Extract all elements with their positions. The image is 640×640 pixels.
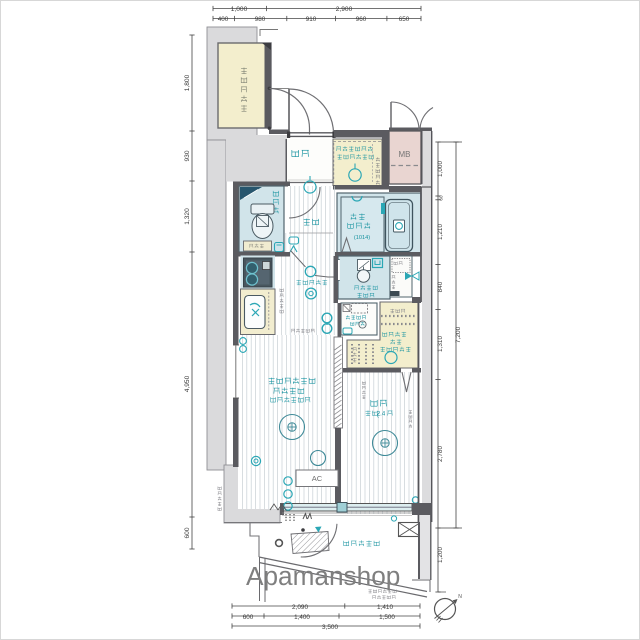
svg-text:600: 600 bbox=[243, 614, 254, 621]
svg-text:N: N bbox=[458, 594, 462, 600]
svg-text:1,410: 1,410 bbox=[377, 604, 393, 611]
svg-text:930: 930 bbox=[184, 150, 191, 161]
svg-text:400: 400 bbox=[218, 16, 229, 23]
svg-text:Apamanshop: Apamanshop bbox=[246, 561, 400, 591]
svg-text:1,000: 1,000 bbox=[437, 161, 444, 177]
svg-text:1,000: 1,000 bbox=[231, 6, 248, 13]
svg-text:980: 980 bbox=[255, 16, 266, 23]
svg-text:1,500: 1,500 bbox=[379, 614, 395, 621]
svg-text:840: 840 bbox=[437, 281, 444, 292]
svg-text:1,200: 1,200 bbox=[437, 547, 444, 563]
svg-text:7,200: 7,200 bbox=[455, 326, 462, 343]
svg-text:910: 910 bbox=[306, 16, 317, 23]
svg-text:1,400: 1,400 bbox=[294, 614, 310, 621]
svg-text:60: 60 bbox=[439, 195, 444, 201]
svg-text:2,780: 2,780 bbox=[437, 446, 444, 462]
svg-text:4,950: 4,950 bbox=[184, 375, 191, 392]
svg-text:650: 650 bbox=[399, 16, 410, 23]
svg-text:1,320: 1,320 bbox=[184, 208, 191, 225]
svg-text:2,900: 2,900 bbox=[336, 6, 353, 13]
svg-text:2,090: 2,090 bbox=[292, 604, 308, 611]
svg-text:AC: AC bbox=[312, 474, 323, 483]
svg-text:MB: MB bbox=[399, 150, 411, 159]
svg-text:960: 960 bbox=[356, 16, 367, 23]
svg-text:2.4: 2.4 bbox=[377, 412, 386, 418]
svg-text:3,500: 3,500 bbox=[322, 624, 338, 631]
svg-text:1,800: 1,800 bbox=[184, 74, 191, 91]
svg-text:1,310: 1,310 bbox=[437, 336, 444, 352]
svg-text:1,210: 1,210 bbox=[437, 224, 444, 240]
svg-text:600: 600 bbox=[184, 527, 191, 538]
svg-text:(1014): (1014) bbox=[354, 235, 370, 241]
